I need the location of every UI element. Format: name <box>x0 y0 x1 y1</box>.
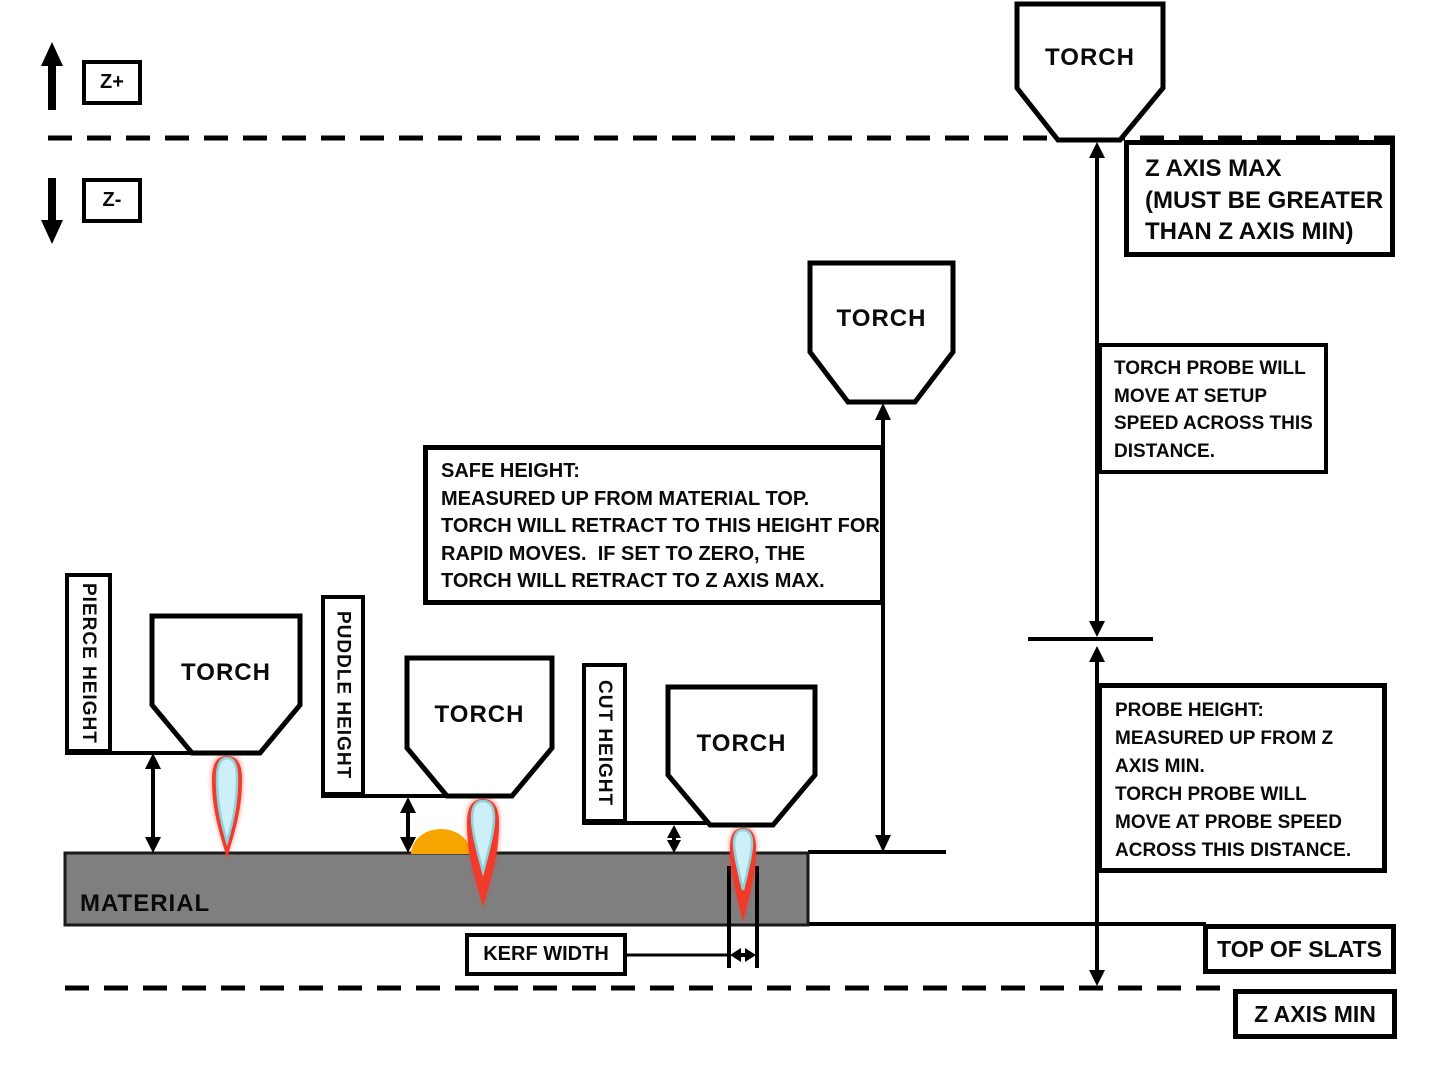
z-axis-max-line: THAN Z AXIS MIN) <box>1145 216 1386 248</box>
top-of-slats-box: TOP OF SLATS <box>1203 924 1396 974</box>
puddle-shape <box>411 829 471 854</box>
cut-height-label-box: CUT HEIGHT <box>582 663 627 823</box>
z-plus-arrow-icon <box>41 42 63 110</box>
z-axis-max-box: Z AXIS MAX (MUST BE GREATER THAN Z AXIS … <box>1124 140 1395 257</box>
z-axis-min-box: Z AXIS MIN <box>1233 989 1397 1039</box>
torch-label-safe: TORCH <box>810 301 953 337</box>
torch-probe-box: TORCH PROBE WILL MOVE AT SETUP SPEED ACR… <box>1098 343 1328 474</box>
torch-label-pierce: TORCH <box>152 655 300 691</box>
torch-height-diagram: Z+ Z- TORCH TORCH TORCH TORCH TORCH Z AX… <box>0 0 1436 1078</box>
pierce-height-arrow <box>145 753 161 853</box>
z-axis-max-line: Z AXIS MAX <box>1145 153 1386 185</box>
torch-label-puddle: TORCH <box>407 697 552 733</box>
kerf-width-arrow <box>730 948 756 962</box>
puddle-height-label-box: PUDDLE HEIGHT <box>321 595 365 796</box>
pierce-flame-icon <box>211 754 243 858</box>
z-minus-label-box: Z- <box>82 178 142 223</box>
z-plus-label-box: Z+ <box>82 60 142 105</box>
kerf-width-box: KERF WIDTH <box>465 933 627 976</box>
safe-height-box: SAFE HEIGHT: MEASURED UP FROM MATERIAL T… <box>423 445 885 605</box>
cut-height-arrow <box>667 825 681 853</box>
pierce-height-label-box: PIERCE HEIGHT <box>65 573 112 753</box>
z-plus-label: Z+ <box>100 69 124 95</box>
z-minus-arrow-icon <box>41 178 63 244</box>
z-axis-max-line: (MUST BE GREATER <box>1145 185 1386 217</box>
torch-label-top-right: TORCH <box>1017 40 1163 76</box>
torch-label-cut: TORCH <box>668 726 815 762</box>
z-minus-label: Z- <box>103 187 122 213</box>
probe-height-box: PROBE HEIGHT: MEASURED UP FROM Z AXIS MI… <box>1097 683 1387 873</box>
material-label: MATERIAL <box>80 890 210 918</box>
